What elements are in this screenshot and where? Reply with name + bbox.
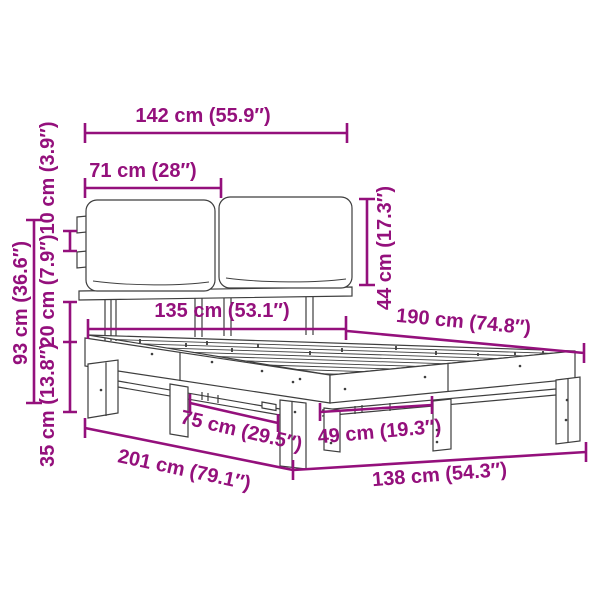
dim-frame-height: 35 cm (13.8″) <box>37 342 77 467</box>
dim-bed-width: 135 cm (53.1″) <box>88 300 346 340</box>
bed-dimension-drawing: 142 cm (55.9″) 71 cm (28″) 10 cm (3.9″) … <box>0 0 600 600</box>
cushion-left <box>86 200 215 291</box>
dim-headboard-width-label: 142 cm (55.9″) <box>135 105 270 127</box>
dim-headboard-width: 142 cm (55.9″) <box>85 105 347 143</box>
dim-overall-length-label: 201 cm (79.1″) <box>116 445 253 495</box>
dim-bed-length-label: 190 cm (74.8″) <box>395 305 532 339</box>
dim-cushion-width: 71 cm (28″) <box>85 160 221 198</box>
dim-frame-height-label: 35 cm (13.8″) <box>37 343 59 467</box>
leg-head-left <box>88 360 118 418</box>
dim-headboard-height-label: 93 cm (36.6″) <box>10 241 32 365</box>
dim-bed-width-label: 135 cm (53.1″) <box>154 300 289 322</box>
dim-cushion-height: 44 cm (17.3″) <box>359 186 396 310</box>
dim-frame-gap-label: 20 cm (7.9″) <box>37 235 59 348</box>
cushion-right <box>219 197 352 288</box>
dim-cushion-width-label: 71 cm (28″) <box>89 160 196 182</box>
headboard-cushions <box>86 197 352 291</box>
dim-cushion-gap: 10 cm (3.9″) <box>37 122 77 251</box>
dim-cushion-gap-label: 10 cm (3.9″) <box>37 122 59 235</box>
dimension-diagram: 142 cm (55.9″) 71 cm (28″) 10 cm (3.9″) … <box>0 0 600 600</box>
dim-cushion-height-label: 44 cm (17.3″) <box>374 186 396 310</box>
